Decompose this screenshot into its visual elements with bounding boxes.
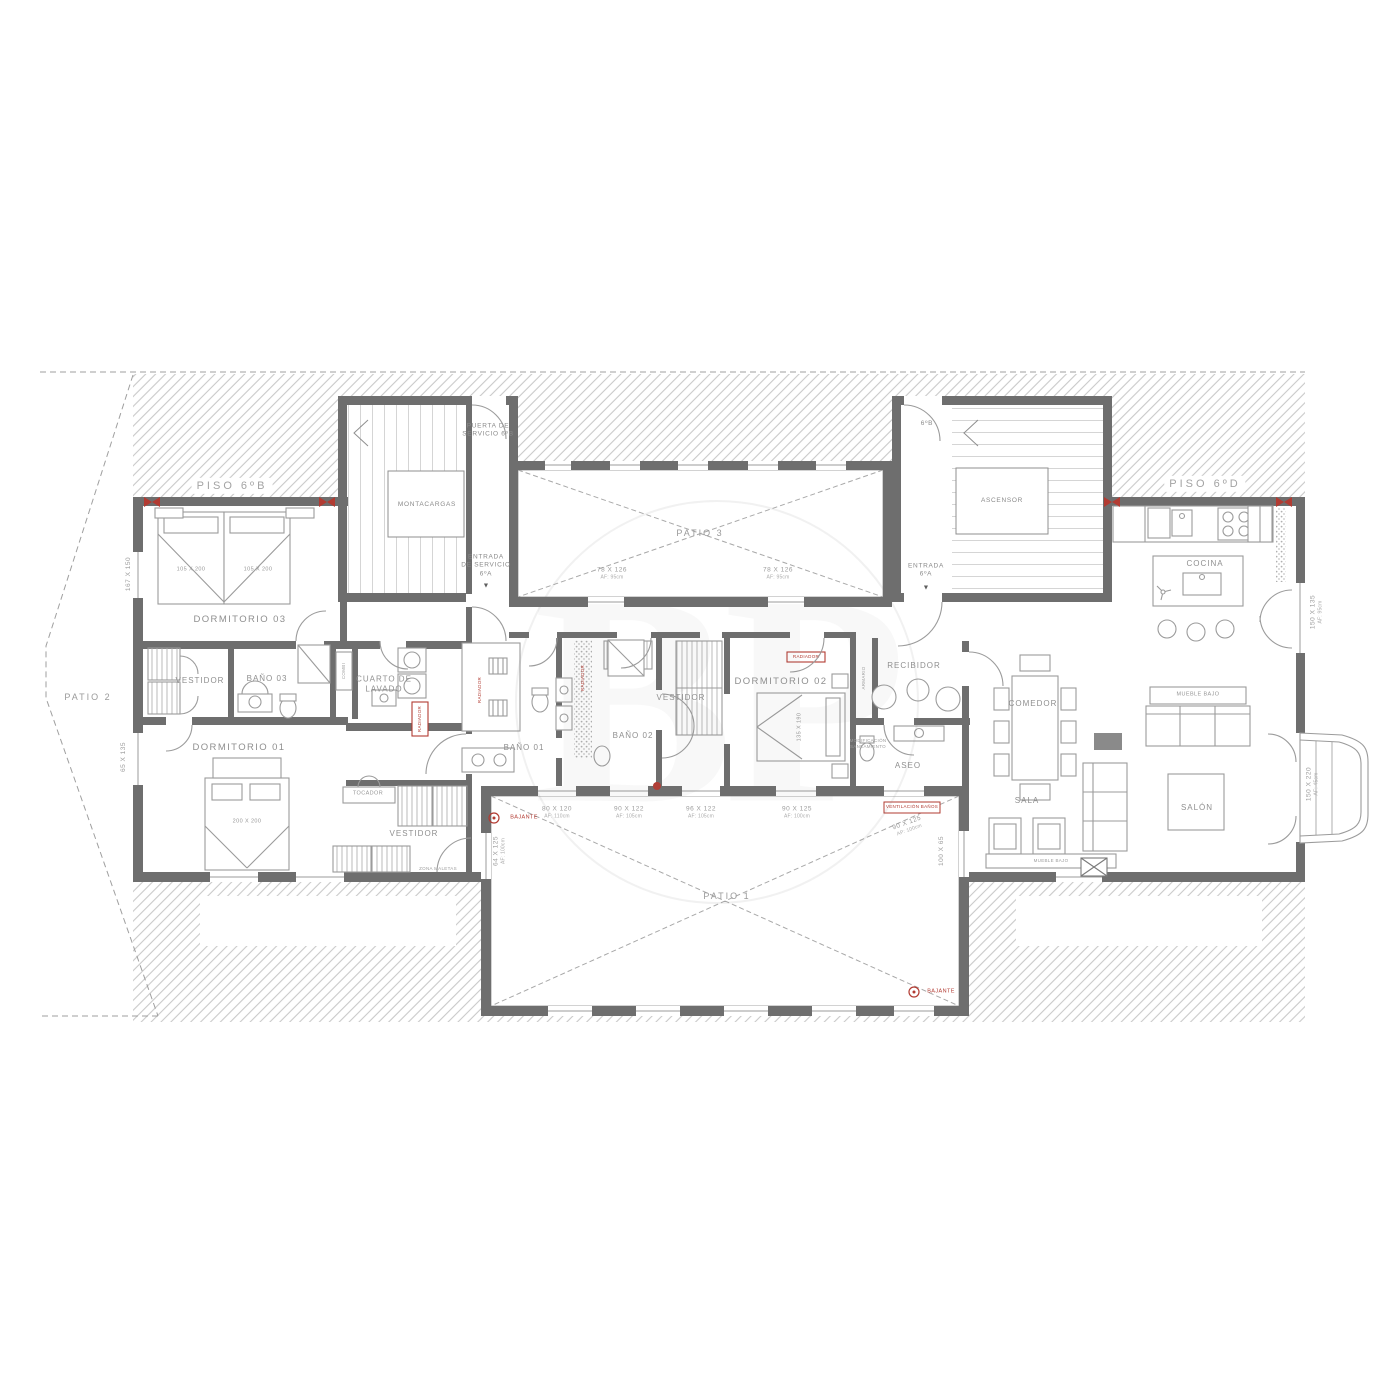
label-entrada-servicio: ENTRADA DE SERVICIO 6ºA: [461, 553, 510, 578]
dim-size: 64 X 125: [492, 836, 499, 866]
red-note-radiador: RADIADOR: [417, 706, 423, 732]
dim-sill: AF: 45cm: [1313, 767, 1319, 801]
bed-dim-label: 200 X 200: [233, 818, 262, 825]
core-label-ascensor: ASCENSOR: [981, 497, 1023, 505]
dim-size: 65 X 135: [120, 742, 127, 772]
room-label-vestidor: VESTIDOR: [657, 693, 706, 703]
dim-sill: AF: 100cm: [782, 813, 812, 819]
window-dim-label: 78 X 126 AF: 95cm: [597, 558, 627, 587]
bed-dim-label: 105 X 200: [177, 566, 206, 573]
room-label-recibidor: RECIBIDOR: [887, 661, 940, 671]
window-dim-label: 90 X 125 AP: 100cm: [889, 807, 927, 845]
note-modificacion: MODIFICACIÓN SANEAMIENTO: [850, 738, 887, 750]
dim-size: 90 X 122: [614, 805, 644, 812]
dim-sill: AF: 95cm: [763, 574, 793, 580]
label-ref-6b: 6ºB: [921, 420, 933, 428]
floorplan-canvas: BP PISO 6ºB PISO 6ºD PATIO 2 PATIO 3 PAT…: [0, 0, 1400, 1399]
dim-size: 78 X 126: [763, 566, 793, 573]
label-puerta-servicio: PUERTA DE SERVICIO 6ºB: [462, 423, 513, 440]
labels-layer: PISO 6ºB PISO 6ºD PATIO 2 PATIO 3 PATIO …: [0, 0, 1400, 1399]
window-dim-label: 64 X 125 AF: 100cm: [484, 836, 513, 866]
window-dim-label: 78 X 126 AF: 95cm: [763, 558, 793, 587]
room-label-bano-03: BAÑO 03: [247, 674, 288, 684]
window-dim-label: 90 X 122 AF: 105cm: [614, 797, 644, 826]
label-combi: COMBI: [341, 663, 347, 679]
bed-dim-label: 105 X 200: [244, 566, 273, 573]
red-note-bajante: BAJANTE: [927, 988, 955, 995]
dim-size: 150 X 220: [1305, 767, 1312, 801]
red-note-radiador: RADIADOR: [793, 654, 819, 660]
window-dim-label: 167 X 150: [117, 557, 133, 591]
bed-dim-label: 135 X 190: [796, 713, 803, 742]
room-label-aseo: ASEO: [895, 761, 921, 771]
dim-size: 150 X 135: [1309, 595, 1316, 629]
core-label-montacargas: MONTACARGAS: [398, 501, 456, 509]
room-label-bano-02: BAÑO 02: [613, 731, 654, 741]
entrance-arrow-icon: ▼: [483, 581, 490, 590]
dim-size: 100 X 65: [938, 836, 945, 866]
window-dim-label: 90 X 125 AF: 100cm: [782, 797, 812, 826]
room-label-vestidor: VESTIDOR: [176, 676, 225, 686]
red-note-radiador: RADIADOR: [580, 665, 586, 691]
red-note-ventilacion: VENTILACIÓN BAÑOS: [886, 804, 938, 810]
dim-size: 78 X 126: [597, 566, 627, 573]
room-label-sala: SALA: [1015, 796, 1039, 806]
dim-size: 80 X 120: [542, 805, 572, 812]
dim-size: 90 X 125: [782, 805, 812, 812]
label-mueble-bajo: MUEBLE BAJO: [1034, 858, 1069, 864]
room-label-salon: SALÓN: [1181, 803, 1213, 813]
label-zona-maletas: ZONA MALETAS: [419, 866, 457, 872]
area-label-patio-3: PATIO 3: [676, 528, 723, 540]
label-entrada: ENTRADA 6ºA: [908, 563, 944, 580]
dim-sill: AF: 105cm: [614, 813, 644, 819]
label-armario: ARMARIO: [861, 666, 867, 689]
window-dim-label: 150 X 220 AF: 45cm: [1297, 767, 1326, 801]
window-dim-label: 65 X 135: [112, 742, 128, 772]
room-label-cocina: COCINA: [1186, 559, 1223, 569]
area-label-patio-1: PATIO 1: [703, 891, 750, 903]
room-label-dormitorio-01: DORMITORIO 01: [193, 742, 286, 754]
dim-sill: AF: 95cm: [597, 574, 627, 580]
window-dim-label: 80 X 120 AF: 110cm: [542, 797, 572, 826]
window-dim-label: 96 X 122 AF: 105cm: [686, 797, 716, 826]
room-label-dormitorio-02: DORMITORIO 02: [735, 676, 828, 688]
area-label-patio-2: PATIO 2: [64, 692, 111, 704]
window-dim-label: 150 X 135 AF: 95cm: [1301, 595, 1330, 629]
room-label-comedor: COMEDOR: [1009, 699, 1058, 709]
window-dim-label: 100 X 65: [930, 836, 946, 866]
room-label-cuarto-lavado: CUARTO DE LAVADO: [356, 675, 412, 696]
area-label-piso-6b: PISO 6ºB: [192, 478, 273, 494]
room-label-dormitorio-03: DORMITORIO 03: [194, 614, 287, 626]
dim-sill: AF: 100cm: [500, 836, 506, 866]
room-label-vestidor: VESTIDOR: [390, 829, 439, 839]
red-note-radiador: RADIADOR: [477, 677, 483, 703]
dim-sill: AF: 110cm: [542, 813, 572, 819]
dim-size: 167 X 150: [125, 557, 132, 591]
dim-size: 96 X 122: [686, 805, 716, 812]
red-note-bajante: BAJANTE: [510, 814, 538, 821]
dim-sill: AF: 105cm: [686, 813, 716, 819]
area-label-piso-6d: PISO 6ºD: [1164, 476, 1245, 492]
label-tocador: TOCADOR: [353, 790, 383, 797]
room-label-bano-01: BAÑO 01: [504, 743, 545, 753]
dim-sill: AF: 95cm: [1317, 595, 1323, 629]
entrance-arrow-icon: ▼: [923, 583, 930, 592]
label-mueble-bajo: MUEBLE BAJO: [1177, 691, 1220, 698]
